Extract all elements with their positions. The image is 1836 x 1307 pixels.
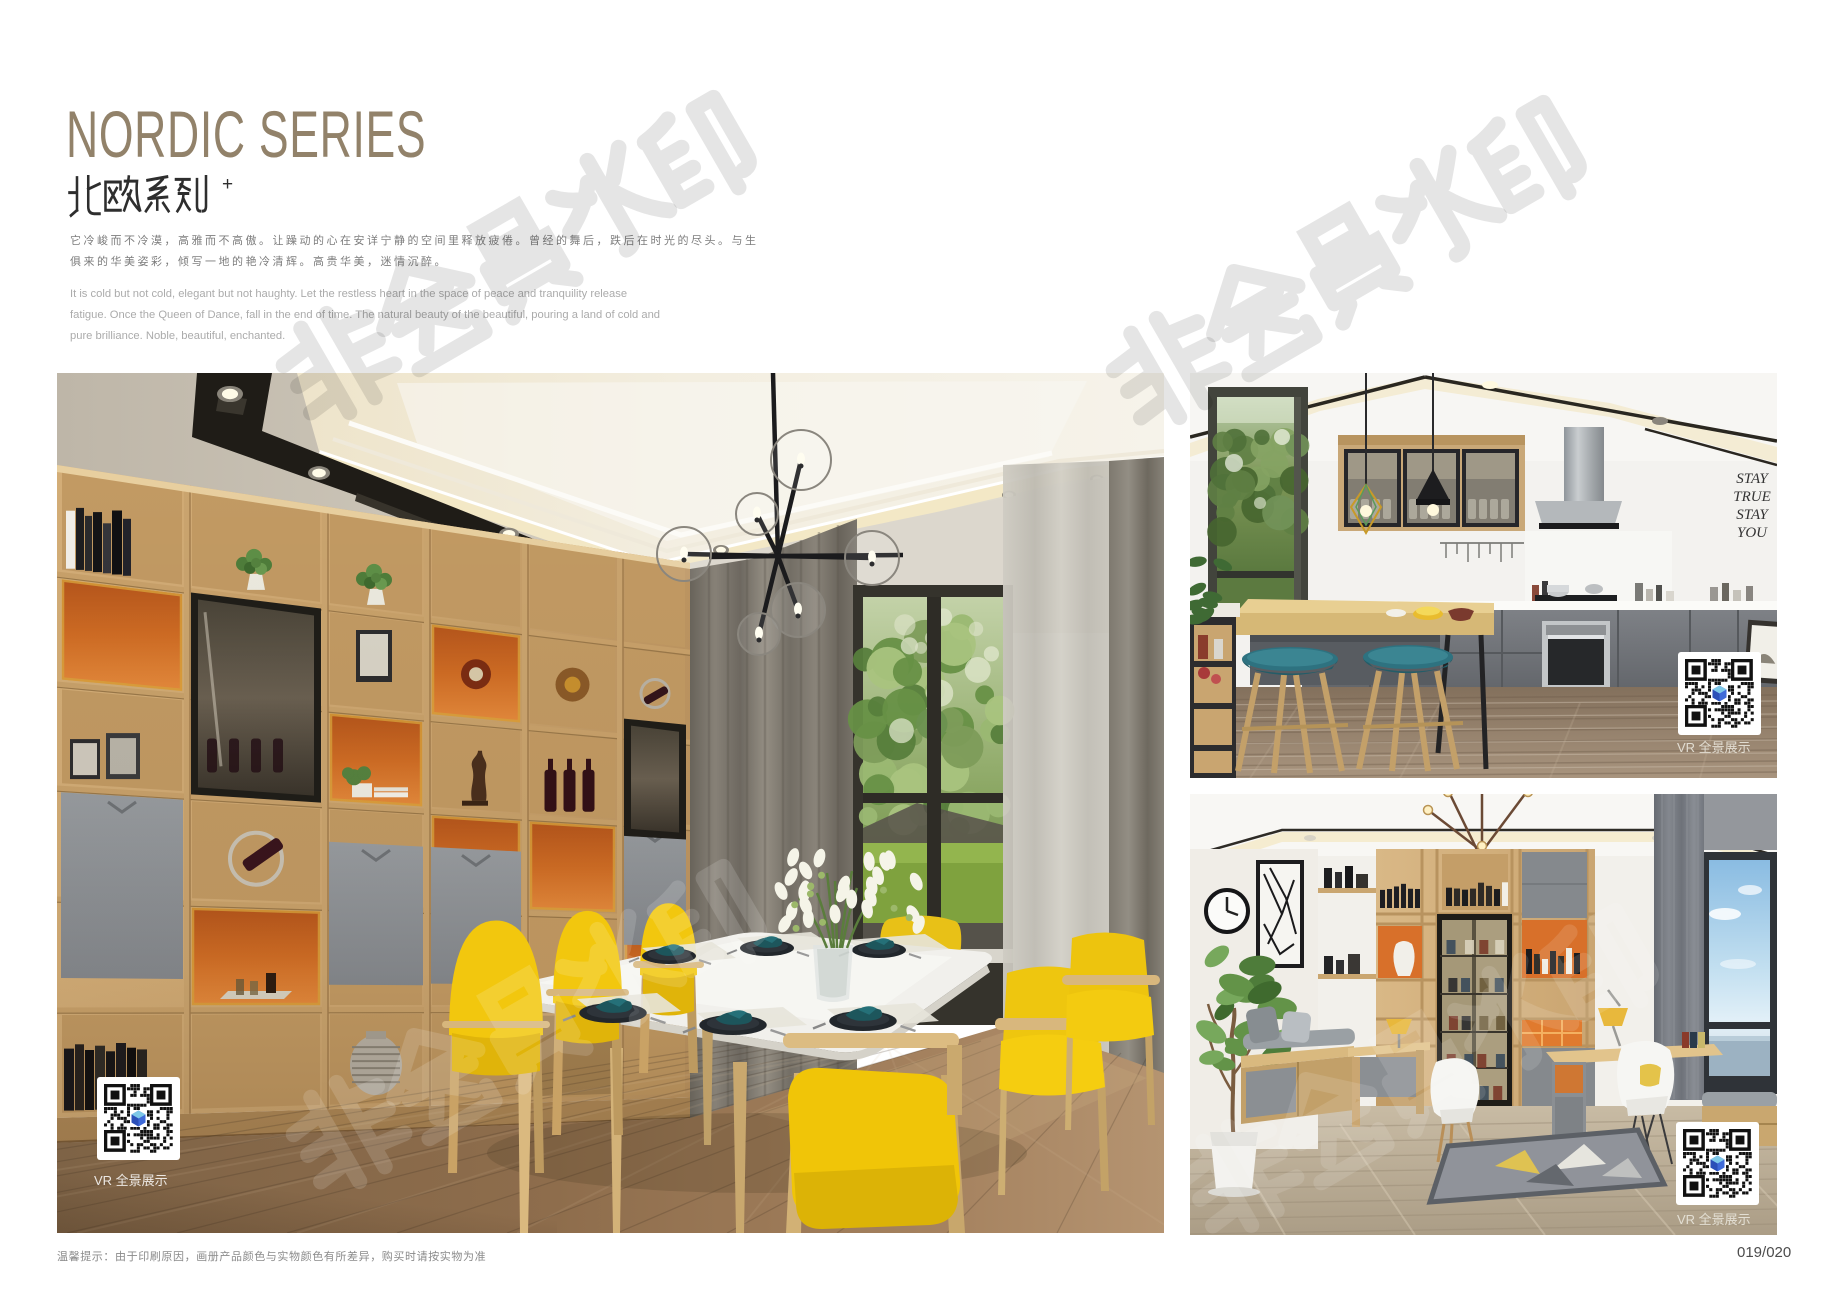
svg-text:VR 全景展示: VR 全景展示	[1677, 740, 1751, 755]
svg-text:YOU: YOU	[1737, 525, 1768, 541]
svg-text:STAY: STAY	[1736, 507, 1769, 523]
svg-text:VR 全景展示: VR 全景展示	[1677, 1212, 1751, 1227]
svg-text:STAY: STAY	[1736, 471, 1769, 487]
svg-text:VR 全景展示: VR 全景展示	[94, 1173, 168, 1188]
svg-text:TRUE: TRUE	[1733, 489, 1771, 505]
